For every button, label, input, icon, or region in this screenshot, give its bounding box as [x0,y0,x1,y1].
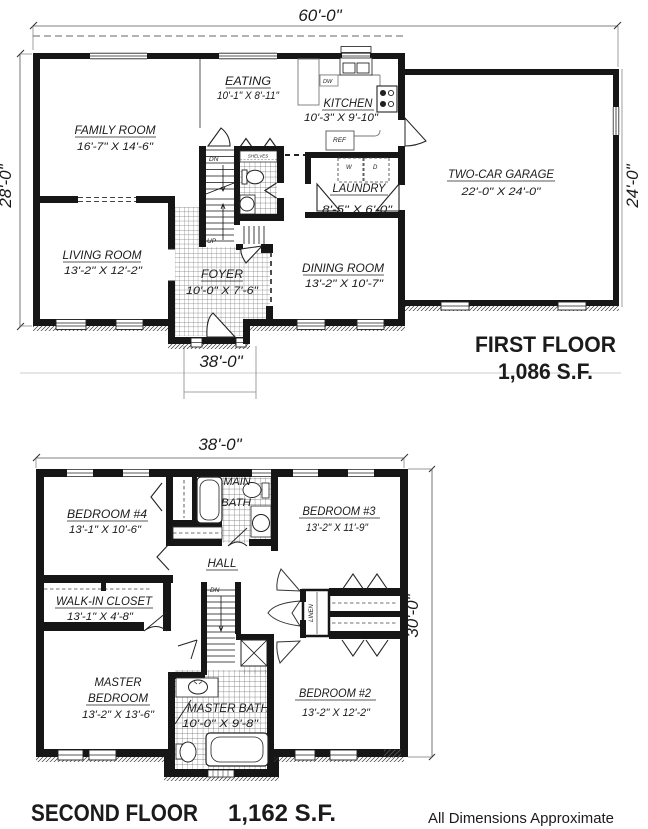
svg-text:MASTER: MASTER [95,675,142,689]
svg-text:FIRST FLOOR: FIRST FLOOR [475,332,616,357]
svg-text:13'-2" X 10'-7": 13'-2" X 10'-7" [305,278,384,290]
svg-text:13'-2" X 12'-2": 13'-2" X 12'-2" [64,265,143,277]
svg-text:MASTER BATH: MASTER BATH [187,701,269,715]
svg-text:1,086 S.F.: 1,086 S.F. [498,359,593,384]
svg-text:BEDROOM: BEDROOM [88,691,148,705]
svg-text:TWO-CAR GARAGE: TWO-CAR GARAGE [448,167,555,181]
svg-text:DW: DW [323,79,333,85]
svg-text:SECOND FLOOR: SECOND FLOOR [31,800,198,827]
svg-text:13'-1" X 10'-6": 13'-1" X 10'-6" [69,524,142,536]
svg-text:BEDROOM #4: BEDROOM #4 [67,507,147,521]
svg-text:WALK-IN CLOSET: WALK-IN CLOSET [56,594,154,608]
svg-text:10'-1" X 8'-11": 10'-1" X 8'-11" [217,90,280,102]
svg-text:38'-0": 38'-0" [199,352,243,371]
svg-text:13'-2" X 12'-2": 13'-2" X 12'-2" [302,707,371,719]
svg-text:UP: UP [207,238,217,245]
svg-text:KITCHEN: KITCHEN [324,96,373,110]
svg-text:BEDROOM #2: BEDROOM #2 [299,686,371,700]
svg-text:DN: DN [209,156,219,163]
svg-text:22'-0" X 24'-0": 22'-0" X 24'-0" [460,186,541,198]
svg-text:REF: REF [333,137,347,144]
svg-text:10'-3" X 9'-10": 10'-3" X 9'-10" [304,112,379,124]
svg-text:10'-0" X 9'-8": 10'-0" X 9'-8" [182,718,259,730]
svg-text:10'-0" X 7'-6": 10'-0" X 7'-6" [186,285,259,297]
svg-text:FOYER: FOYER [201,267,243,281]
svg-text:LAUNDRY: LAUNDRY [333,181,387,195]
svg-text:1,162 S.F.: 1,162 S.F. [228,800,336,827]
svg-text:BATH: BATH [221,497,251,509]
svg-text:13'-2" X 13'-6": 13'-2" X 13'-6" [82,709,155,721]
svg-text:MAIN: MAIN [224,476,251,488]
svg-text:13'-1" X 4'-8": 13'-1" X 4'-8" [67,611,134,623]
svg-text:24'-0": 24'-0" [623,163,642,208]
svg-text:38'-0": 38'-0" [198,435,242,454]
svg-text:LINEN: LINEN [309,603,315,621]
svg-text:HALL: HALL [208,556,237,570]
svg-text:LIVING ROOM: LIVING ROOM [63,248,142,262]
svg-text:SHELVES: SHELVES [248,154,269,159]
svg-text:DINING ROOM: DINING ROOM [302,261,384,275]
svg-text:All Dimensions Approximate: All Dimensions Approximate [428,811,614,827]
svg-text:FAMILY ROOM: FAMILY ROOM [75,123,156,137]
svg-text:D: D [373,165,378,171]
svg-text:28'-0": 28'-0" [0,163,15,208]
svg-text:16'-7" X 14'-6": 16'-7" X 14'-6" [77,141,154,153]
svg-text:13'-2" X 11'-9": 13'-2" X 11'-9" [306,522,369,534]
svg-text:EATING: EATING [225,74,271,88]
svg-text:8'-5" X 6'-0": 8'-5" X 6'-0" [322,204,393,216]
svg-text:DN: DN [210,587,220,594]
svg-text:60'-0": 60'-0" [298,6,342,25]
svg-text:BEDROOM #3: BEDROOM #3 [303,504,376,518]
